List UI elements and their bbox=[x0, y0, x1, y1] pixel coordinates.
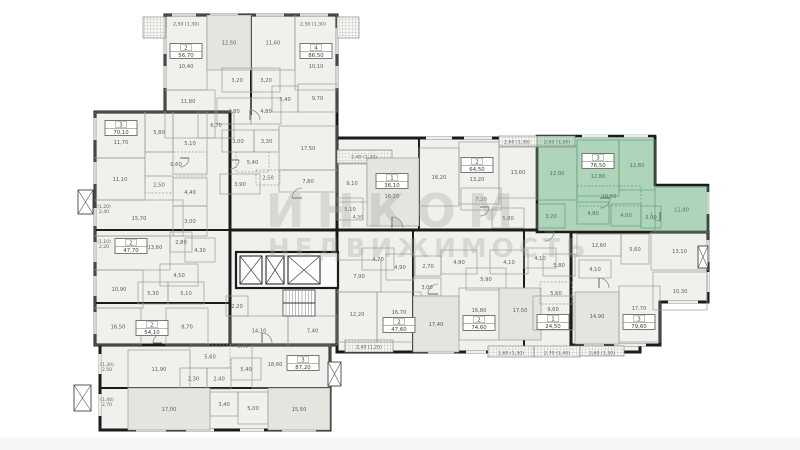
room-area-label: 10,50 bbox=[602, 194, 617, 200]
dimension-label: 2,60 (1,30) bbox=[498, 351, 524, 357]
room-area-label: 10,30 bbox=[673, 289, 688, 295]
unit-area: 74,60 bbox=[471, 325, 487, 331]
room-area-label: 5,10 bbox=[184, 141, 196, 147]
room-area-label: 13,10 bbox=[672, 249, 687, 255]
room-area-label: 7,80 bbox=[302, 179, 314, 185]
room-area-label: 9,10 bbox=[346, 181, 358, 187]
room-area-label: 3,00 bbox=[184, 219, 196, 225]
room-area-label: 3,90 bbox=[234, 182, 246, 188]
unit-rooms-count: 3 bbox=[596, 155, 599, 161]
room-area-label: 12,50 bbox=[222, 40, 237, 46]
room-area-label: 10,40 bbox=[179, 64, 194, 70]
room-area-label: 17,50 bbox=[301, 146, 316, 152]
room-area-label: 5,80 bbox=[153, 130, 165, 136]
dimension-label: (1,10) bbox=[97, 239, 111, 245]
room-area-label: 11,60 bbox=[266, 40, 281, 46]
unit-rooms-count: 2 bbox=[184, 45, 187, 51]
room-area-label: 3,20 bbox=[545, 214, 557, 220]
room-area-label: 2,30 bbox=[188, 376, 200, 382]
room-area-label: 12,80 bbox=[591, 174, 606, 180]
room-area-label: 9,70 bbox=[312, 96, 324, 102]
room-area-label: 10,90 bbox=[112, 287, 127, 293]
room-area-label: 17,00 bbox=[162, 407, 177, 413]
room-area-label: 2,50 bbox=[262, 175, 274, 181]
room-area-label: 2,50 bbox=[153, 182, 165, 188]
room-area-label: 4,80 bbox=[587, 211, 599, 217]
room-area-label: 3,20 bbox=[231, 78, 243, 84]
room-area-label: 15,70 bbox=[132, 216, 147, 222]
unit-area: 79,60 bbox=[631, 324, 647, 330]
dimension-label: 2,50 bbox=[102, 367, 112, 373]
room-area-label: 13,60 bbox=[511, 170, 526, 176]
unit-rooms-count: 1 bbox=[390, 175, 393, 181]
room-area-label: 11,70 bbox=[114, 140, 129, 146]
room-area-label: 14,90 bbox=[590, 314, 605, 320]
unit-area: 64,50 bbox=[469, 167, 485, 173]
room-area-label: 5,40 bbox=[247, 160, 259, 166]
room-area-label: 11,90 bbox=[674, 207, 689, 213]
dimension-label: 2,70 bbox=[102, 402, 112, 408]
dimension-label: 2,50 (1,30) bbox=[300, 22, 326, 28]
unit-rooms-count: 2 bbox=[129, 240, 132, 246]
room-area-label: 4,50 bbox=[173, 273, 185, 279]
room-area-label: 4,40 bbox=[184, 190, 196, 196]
floor-plan-page: 10,4012,5011,6010,103,203,205,409,704,80… bbox=[0, 0, 800, 450]
room-area-label: 2,40 bbox=[213, 376, 225, 382]
dimension-label: 2,60 (1,30) bbox=[544, 140, 570, 146]
room-area-label: 5,80 bbox=[502, 216, 514, 222]
room-area-label: 17,70 bbox=[632, 306, 647, 312]
dimension-label: 2,20 bbox=[99, 244, 109, 250]
dimension-label: 2,70 (1,40) bbox=[544, 351, 570, 357]
unit-rooms-count: 2 bbox=[397, 319, 400, 325]
room bbox=[367, 158, 419, 226]
unit-area: 47,60 bbox=[391, 327, 407, 333]
room-area-label: 2,20 bbox=[231, 304, 243, 310]
dimension-label: 2,60 bbox=[238, 344, 248, 350]
unit-rooms-count: 4 bbox=[314, 45, 318, 51]
page-bottom-strip bbox=[0, 438, 800, 450]
balcony-hatch bbox=[337, 17, 359, 38]
unit-area: 56,70 bbox=[178, 53, 194, 59]
unit-rooms-count: 1 bbox=[551, 316, 554, 322]
room-area-label: 12,60 bbox=[592, 243, 607, 249]
dimension-label: (1,20) bbox=[97, 204, 111, 210]
room-area-label: 4,10 bbox=[534, 256, 546, 262]
room-area-label: 16,20 bbox=[432, 175, 447, 181]
room-area-label: 4,00 bbox=[620, 213, 632, 219]
room-area-label: 16,50 bbox=[111, 324, 126, 330]
dimension-label: 2,60 (1,30) bbox=[504, 140, 530, 146]
room-area-label: 13,20 bbox=[470, 177, 485, 183]
dimension-label: (1,30) bbox=[100, 362, 114, 368]
room-area-label: 3,20 bbox=[260, 78, 272, 84]
room-area-label: 9,60 bbox=[547, 307, 559, 313]
room-area-label: 11,90 bbox=[152, 367, 167, 373]
room-area-label: 3,00 bbox=[421, 285, 433, 291]
room-area-label: 17,40 bbox=[429, 322, 444, 328]
room-area-label: 3,00 bbox=[232, 139, 244, 145]
room-area-label: 16,20 bbox=[385, 194, 400, 200]
room-area-label: 4,80 bbox=[453, 260, 465, 266]
dimension-label: 4,50 bbox=[353, 215, 363, 221]
room-area-label: 4,70 bbox=[372, 257, 384, 263]
room-area-label: 11,10 bbox=[113, 177, 128, 183]
room-area-label: 15,50 bbox=[292, 407, 307, 413]
room-area-label: 11,80 bbox=[181, 99, 196, 105]
room-area-label: 5,10 bbox=[180, 291, 192, 297]
room-area-label: 7,90 bbox=[353, 274, 365, 280]
room-area-label: 5,30 bbox=[147, 291, 159, 297]
room-area-label: 5,00 bbox=[247, 406, 259, 412]
unit-rooms-count: 3 bbox=[301, 357, 304, 363]
dimension-label: 2,50 (1,30) bbox=[173, 22, 199, 28]
balcony-hatch bbox=[143, 17, 166, 38]
unit-area: 70,10 bbox=[113, 130, 129, 136]
room-area-label: 7,20 bbox=[475, 197, 487, 203]
room-area-label: 5,80 bbox=[553, 263, 565, 269]
room-area-label: 18,60 bbox=[268, 362, 283, 368]
unit-area: 87,20 bbox=[295, 365, 311, 371]
unit-area: 76,50 bbox=[590, 163, 606, 169]
room-area-label: 12,80 bbox=[630, 163, 645, 169]
room-area-label: 4,90 bbox=[394, 265, 406, 271]
unit-area: 54,10 bbox=[144, 330, 160, 336]
room-area-label: 12,20 bbox=[350, 312, 365, 318]
unit-rooms-count: 2 bbox=[150, 322, 153, 328]
unit-area: 36,10 bbox=[384, 183, 400, 189]
room-area-label: 3,40 bbox=[218, 402, 230, 408]
unit-rooms-count: 2 bbox=[475, 159, 478, 165]
room-area-label: 2,70 bbox=[422, 264, 434, 270]
unit-area: 24,50 bbox=[545, 324, 561, 330]
room-area-label: 13,60 bbox=[148, 245, 163, 251]
dimension-label: 2,40 bbox=[99, 209, 109, 215]
room-area-label: 5,60 bbox=[204, 354, 216, 360]
room-area-label: 4,80 bbox=[260, 109, 272, 115]
unit-area: 86,50 bbox=[308, 53, 324, 59]
unit-rooms-count: 3 bbox=[637, 316, 640, 322]
room-area-label: 6,70 bbox=[210, 123, 222, 129]
floor-plan-svg: 10,4012,5011,6010,103,203,205,409,704,80… bbox=[0, 0, 800, 450]
dimension-label: 2,40 (1,20) bbox=[356, 345, 382, 351]
room-area-label: 7,40 bbox=[307, 328, 319, 334]
unit-area: 47,70 bbox=[123, 248, 139, 254]
room-area-label: 5,90 bbox=[480, 277, 492, 283]
unit-rooms-count: 3 bbox=[119, 122, 122, 128]
room-area-label: 4,10 bbox=[589, 267, 601, 273]
room-area-label: 16,70 bbox=[392, 310, 407, 316]
room-area-label: 4,30 bbox=[194, 248, 206, 254]
room-area-label: 4,10 bbox=[503, 260, 515, 266]
unit-rooms-count: 2 bbox=[477, 317, 480, 323]
room-area-label: 5,10 bbox=[344, 207, 356, 213]
room-area-label: 5,60 bbox=[629, 247, 641, 253]
room-area-label: 12,00 bbox=[550, 171, 565, 177]
dimension-label: 2,40 (1,20) bbox=[351, 155, 377, 161]
room-area-label: 10,10 bbox=[309, 64, 324, 70]
room-area-label: 17,50 bbox=[513, 308, 528, 314]
room-area-label: 5,40 bbox=[240, 367, 252, 373]
room-area-label: 8,70 bbox=[181, 324, 193, 330]
room-area-label: 3,30 bbox=[261, 139, 273, 145]
dimension-label: (1,40) bbox=[100, 397, 114, 403]
dimension-label: 2,60 (1,30) bbox=[589, 351, 615, 357]
building-section bbox=[95, 112, 230, 345]
room-area-label: 16,80 bbox=[472, 308, 487, 314]
